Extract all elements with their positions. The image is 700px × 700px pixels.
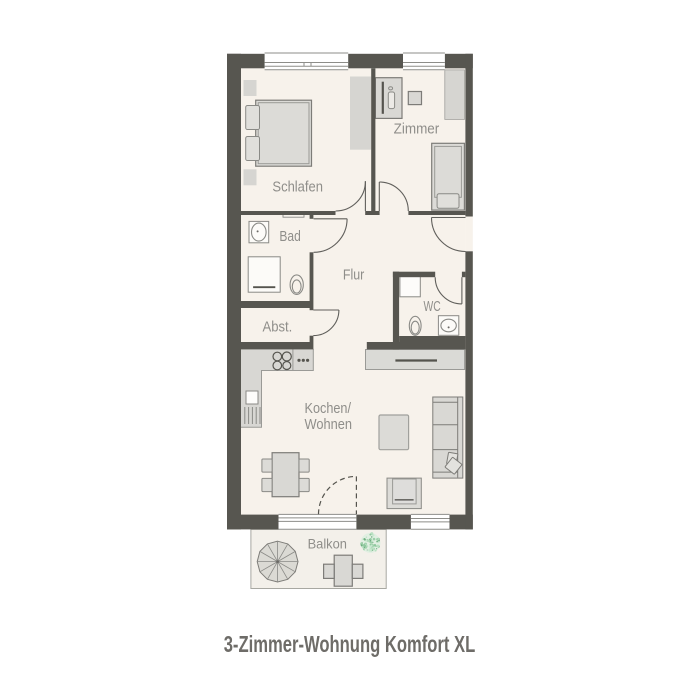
svg-text:Schlafen: Schlafen — [272, 179, 323, 196]
svg-text:Balkon: Balkon — [308, 535, 347, 551]
svg-text:Zimmer: Zimmer — [394, 121, 440, 138]
svg-text:Abst.: Abst. — [263, 319, 293, 336]
svg-text:WC: WC — [424, 298, 441, 315]
svg-text:Flur: Flur — [343, 267, 364, 284]
svg-text:Kochen/: Kochen/ — [305, 400, 352, 417]
svg-text:Bad: Bad — [279, 228, 300, 245]
svg-text:3-Zimmer-Wohnung Komfort XL: 3-Zimmer-Wohnung Komfort XL — [224, 631, 476, 657]
svg-text:Wohnen: Wohnen — [305, 416, 353, 433]
